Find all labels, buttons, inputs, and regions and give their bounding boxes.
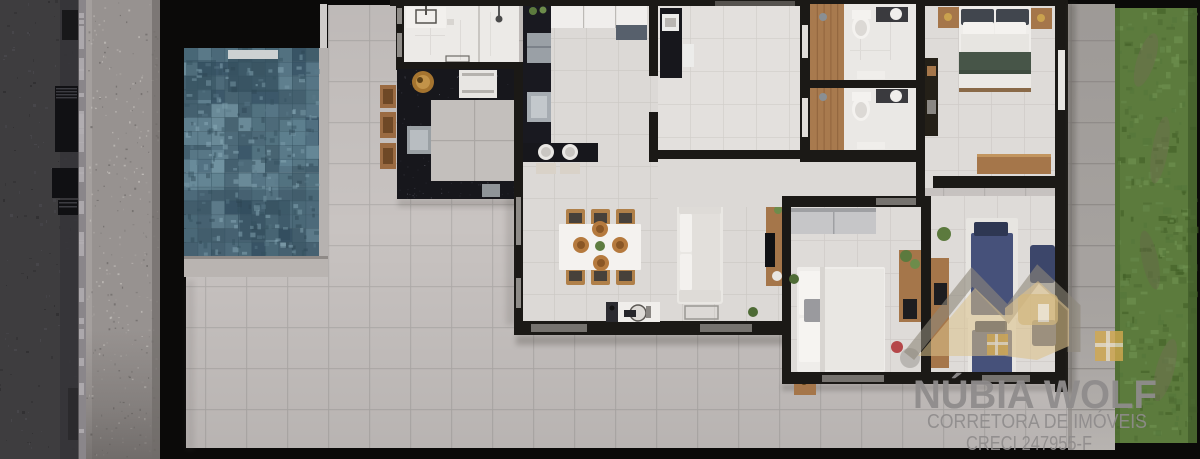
svg-text:CORRETORA DE IMÓVEIS: CORRETORA DE IMÓVEIS <box>927 410 1147 433</box>
svg-text:CRECI 247955-F: CRECI 247955-F <box>966 433 1092 455</box>
